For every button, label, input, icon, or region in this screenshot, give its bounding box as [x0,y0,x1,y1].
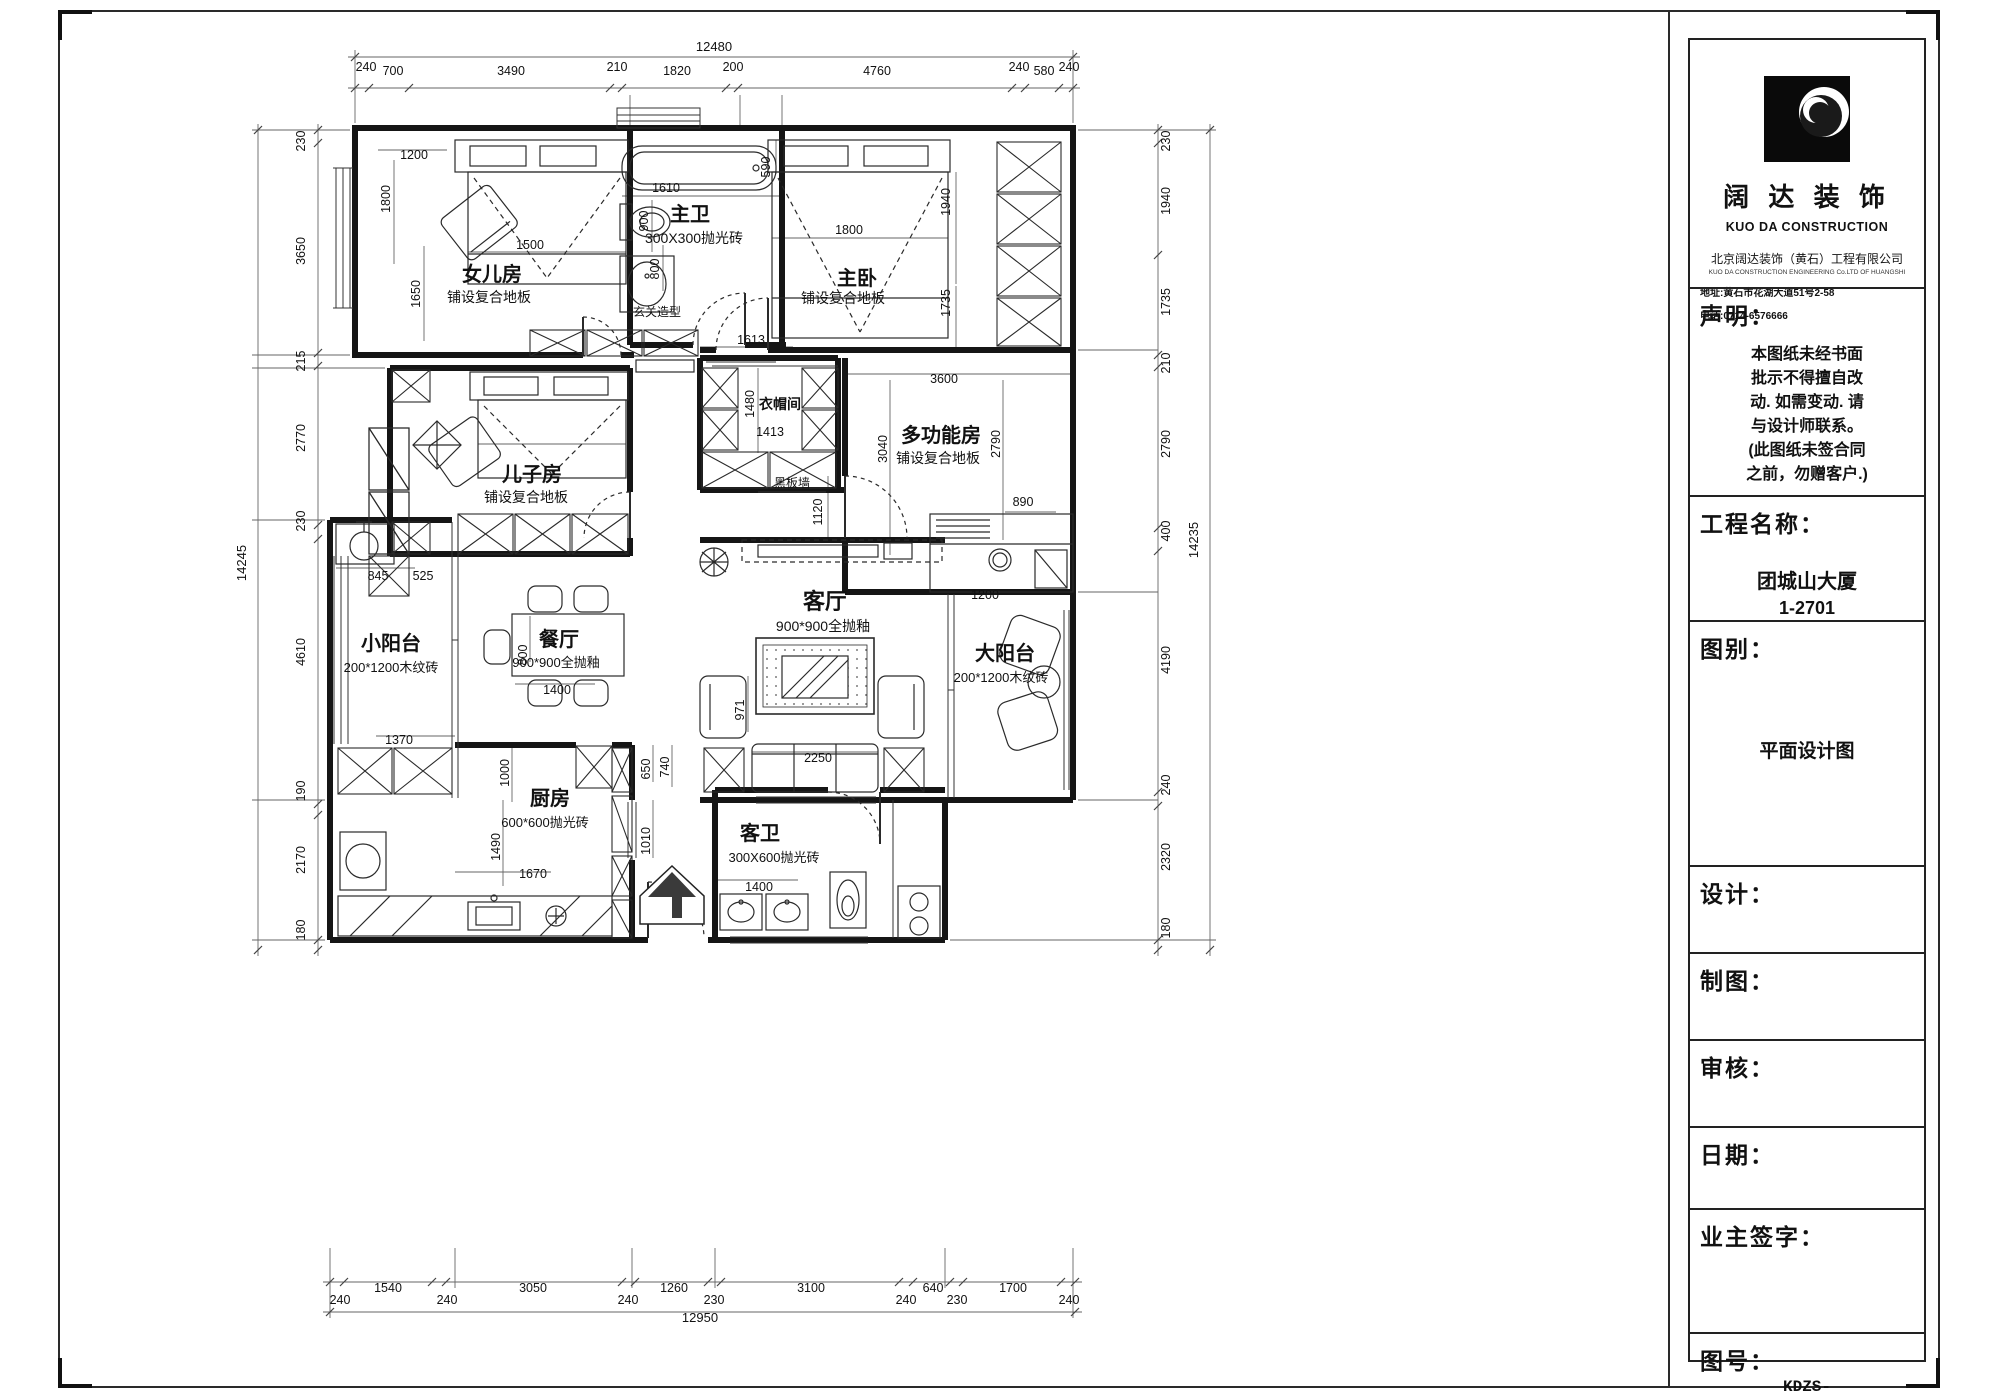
checker-label: 审核： [1700,1049,1914,1083]
walls [330,128,1073,940]
dim-label: 1200 [400,148,428,162]
dim-label: 1120 [811,499,825,526]
room-subtitle: 铺设复合地板 [484,489,568,505]
dim-label: 1200 [971,588,999,602]
dim-label: 240 [1009,60,1030,74]
title-block-logo-section: 阔 达 装 饰 KUO DA CONSTRUCTION 北京阔达装饰（黄石）工程… [1690,40,1924,287]
dim-label: 230 [294,511,308,532]
checker-section: 审核： [1690,1039,1924,1126]
room-label: 衣帽间 [759,396,801,412]
room-label: 小阳台 [361,631,421,655]
declaration-line: 本图纸未经书面 [1700,343,1914,367]
dim-label: 230 [294,131,308,152]
declaration-line: 之前，勿赠客户.) [1700,463,1914,487]
room-subtitle: 900*900全抛釉 [776,618,870,634]
dim-label: 4190 [1159,646,1173,674]
dim-label: 3050 [519,1281,547,1295]
declaration-line: 动. 如需变动. 请 [1700,391,1914,415]
room-label: 多功能房 [901,423,981,447]
drawing-number: KDZS- [1700,1378,1914,1396]
project-name: 团城山大厦 [1700,565,1914,594]
dim-label: 740 [658,757,672,778]
dim-label: 240 [437,1293,458,1307]
drawing-type-section: 图别： 平面设计图 [1690,620,1924,865]
room-label: 客厅 [803,589,847,614]
dim-label: 2250 [804,751,832,765]
room-label: 餐厅 [539,627,579,651]
owner-signature-section: 业主签字： [1690,1208,1924,1332]
dim-label: 650 [639,759,653,780]
brand-name: 阔 达 装 饰 [1700,177,1914,214]
drawing-number-label: 图号： [1700,1342,1914,1376]
dim-label: 210 [1159,353,1173,374]
dim-label: 400 [1159,521,1173,542]
dim-label: 3100 [797,1281,825,1295]
dim-label: 240 [896,1293,917,1307]
room-label: 大阳台 [975,641,1035,665]
dim-label: 800 [648,259,662,280]
title-block: 阔 达 装 饰 KUO DA CONSTRUCTION 北京阔达装饰（黄石）工程… [1688,38,1926,1362]
declaration-line: 与设计师联系。 [1700,415,1914,439]
declaration-title: 声明： [1700,297,1914,331]
dim-label: 1613 [737,333,765,347]
company-name-en: KUO DA CONSTRUCTION ENGINEERING Co.LTD O… [1700,269,1914,276]
declaration-line: (此图纸未签合同 [1700,439,1914,463]
dim-label: 1413 [756,425,784,439]
designer-section: 设计： [1690,865,1924,952]
project-name-label: 工程名称： [1700,505,1914,539]
project-number: 1-2701 [1700,598,1914,619]
room-subtitle: 300X300抛光砖 [645,230,743,246]
dim-label: 2170 [294,846,308,874]
room-label: 儿子房 [501,462,562,486]
dim-label: 230 [947,1293,968,1307]
dim-label: 1610 [652,181,680,195]
drawing-sheet: 女儿房铺设复合地板主卫300X300抛光砖主卧铺设复合地板玄关造型儿子房铺设复合… [0,0,2000,1400]
dim-label: 1260 [660,1281,688,1295]
room-subtitle: 铺设复合地板 [801,290,885,306]
dim-label: 1800 [379,185,393,213]
dim-label: 240 [1059,1293,1080,1307]
room-subtitle: 300X600抛光砖 [728,850,819,865]
dim-label: 180 [1159,918,1173,939]
dim-label: 2790 [1159,430,1173,458]
room-subtitle: 600*600抛光砖 [501,815,588,830]
dim-label: 14235 [1186,522,1201,558]
dim-label: 1490 [489,833,503,861]
dim-label: 1000 [498,759,512,787]
dim-label: 1735 [1159,288,1173,316]
declaration-section: 声明： 本图纸未经书面 批示不得擅自改 动. 如需变动. 请 与设计师联系。 (… [1690,287,1924,495]
brand-name-en: KUO DA CONSTRUCTION [1700,220,1914,234]
dim-label: 240 [356,60,377,74]
dim-label: 3490 [497,64,525,78]
dim-label: 190 [294,781,308,802]
plan-labels: 女儿房铺设复合地板主卫300X300抛光砖主卧铺设复合地板玄关造型儿子房铺设复合… [234,39,1201,1325]
dim-label: 4610 [294,638,308,666]
dim-label: 890 [1013,495,1034,509]
dim-label: 640 [923,1281,944,1295]
dim-label: 700 [383,64,404,78]
dim-label: 1650 [409,280,423,308]
feature-label: 黑板墙 [774,476,810,490]
dim-label: 2790 [989,430,1003,458]
dim-label: 1800 [835,223,863,237]
drafter-label: 制图： [1700,962,1914,996]
drawing-type-label: 图别： [1700,630,1914,664]
dim-label: 1400 [543,683,571,697]
dim-label: 230 [704,1293,725,1307]
dim-label: 1670 [519,867,547,881]
dim-label: 1400 [745,880,773,894]
designer-label: 设计： [1700,875,1914,909]
dim-label: 1010 [639,827,653,855]
dim-label: 1500 [516,238,544,252]
dim-label: 200 [723,60,744,74]
dim-label: 971 [733,700,747,721]
cabinet-boxes [338,142,1061,938]
declaration-line: 批示不得擅自改 [1700,367,1914,391]
room-subtitle: 铺设复合地板 [896,450,980,466]
dim-label: 2770 [294,424,308,452]
room-subtitle: 200*1200木纹砖 [954,670,1049,685]
dim-label: 2320 [1159,843,1173,871]
floor-plan-svg: 女儿房铺设复合地板主卫300X300抛光砖主卧铺设复合地板玄关造型儿子房铺设复合… [0,0,1660,1400]
dim-label: 180 [294,920,308,941]
entrance-arrow-icon [640,866,704,924]
room-label: 女儿房 [462,262,522,286]
drawing-number-section: 图号： KDZS- [1690,1332,1924,1364]
dim-label: 1735 [939,289,953,317]
room-label: 主卫 [670,202,710,226]
date-section: 日期： [1690,1126,1924,1208]
room-label: 主卧 [837,266,877,290]
dim-label: 525 [413,569,434,583]
dim-label: 215 [294,351,308,372]
frame-divider [1668,10,1670,1388]
room-label: 厨房 [530,786,570,810]
dim-label: 1540 [374,1281,402,1295]
dim-label: 240 [1159,775,1173,796]
dim-label: 580 [1034,64,1055,78]
dim-label: 590 [759,157,773,178]
dim-label: 1940 [939,188,953,216]
dim-label: 1820 [663,64,691,78]
dim-label: 3650 [294,237,308,265]
dim-label: 845 [368,569,389,583]
dim-label: 1480 [743,390,757,418]
dim-label: 900 [637,211,651,232]
room-subtitle: 铺设复合地板 [447,289,531,305]
corner-mark [1936,1358,1940,1388]
dim-label: 3600 [930,372,958,386]
dim-label: 1700 [999,1281,1027,1295]
drawing-type: 平面设计图 [1700,736,1914,763]
room-label: 客卫 [739,821,780,845]
company-name: 北京阔达装饰（黄石）工程有限公司 [1700,250,1914,267]
feature-label: 玄关造型 [633,304,681,319]
room-subtitle: 200*1200木纹砖 [344,660,439,675]
dim-label: 14245 [234,545,249,581]
dim-label: 210 [607,60,628,74]
dim-label: 800 [516,645,530,666]
dim-label: 240 [618,1293,639,1307]
corner-mark [1906,10,1940,14]
dim-label: 12950 [682,1310,718,1325]
dim-label: 240 [1059,60,1080,74]
dim-label: 3040 [876,435,890,463]
dim-label: 240 [330,1293,351,1307]
owner-signature-label: 业主签字： [1700,1218,1914,1252]
drafter-section: 制图： [1690,952,1924,1039]
date-label: 日期： [1700,1136,1914,1170]
project-name-section: 工程名称： 团城山大厦 1-2701 [1690,495,1924,620]
dim-label: 4760 [863,64,891,78]
dim-label: 230 [1159,131,1173,152]
dim-label: 1370 [385,733,413,747]
dim-label: 12480 [696,39,732,54]
corner-mark [1936,10,1940,40]
company-logo-icon [1764,76,1850,162]
dim-label: 1940 [1159,187,1173,215]
plant-icon [700,548,728,576]
